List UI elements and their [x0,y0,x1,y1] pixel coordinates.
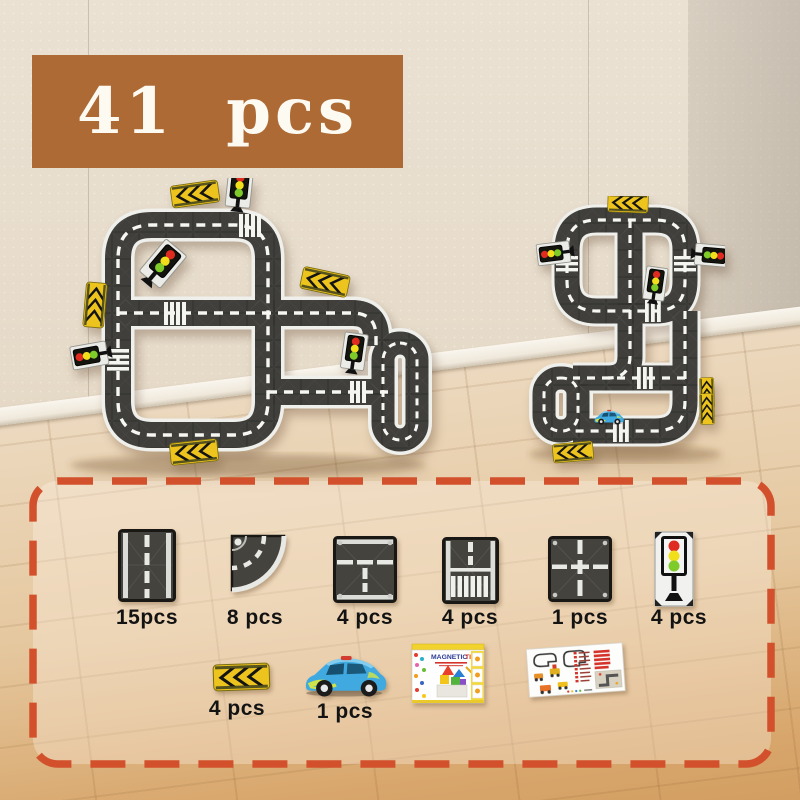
box-side-panels [471,651,484,701]
piece-count-banner: 41 pcs [32,55,403,168]
crosswalk-qty: 4 pcs [415,606,525,630]
track-shadow [70,454,426,476]
traffic-light-inner [136,239,187,293]
traffic-light-left [536,240,575,266]
straight-road-qty: 15pcs [92,606,202,630]
cross-intersection-qty: 1 pcs [525,606,635,630]
curve-road-tile [226,530,288,611]
toy-car-on-track [595,410,624,425]
traffic-light-qty: 4 pcs [624,606,734,630]
chevron-barrier-qty: 4 pcs [182,697,292,721]
magnetic-tiles-box: MAGNETIC TILES [409,643,489,712]
traffic-light-top [225,178,254,213]
t-junction-road-tile [333,536,397,608]
crosswalk-road-tile [442,537,499,609]
chevron-barrier-middle [299,266,350,298]
product-photo: 41 pcs [0,0,800,800]
traffic-light-part [654,531,694,612]
chevron-barrier-bottom [169,439,219,466]
toy-car-qty: 1 pcs [290,700,400,724]
chevron-barrier-top [608,196,649,213]
traffic-light-right [340,332,369,375]
piece-count-label: 41 pcs [77,74,358,149]
straight-road-tile [118,529,176,607]
curve-road-qty: 8 pcs [200,606,310,630]
assembled-track-left [58,178,442,478]
instruction-sheet [525,642,627,706]
chevron-barrier-bottom [552,441,594,463]
chevron-barrier-top [170,180,220,209]
chevron-barrier-part [208,660,274,701]
toy-car-part [302,652,388,703]
sheet-layout-thumbnail [595,670,622,689]
box-title-word1: MAGNETIC [431,654,467,661]
chevron-barrier-left [83,282,108,328]
assembled-track-right [525,196,725,464]
cross-intersection-road-tile [548,536,612,607]
t-junction-qty: 4 pcs [310,606,420,630]
chevron-barrier-right-2 [699,393,714,424]
